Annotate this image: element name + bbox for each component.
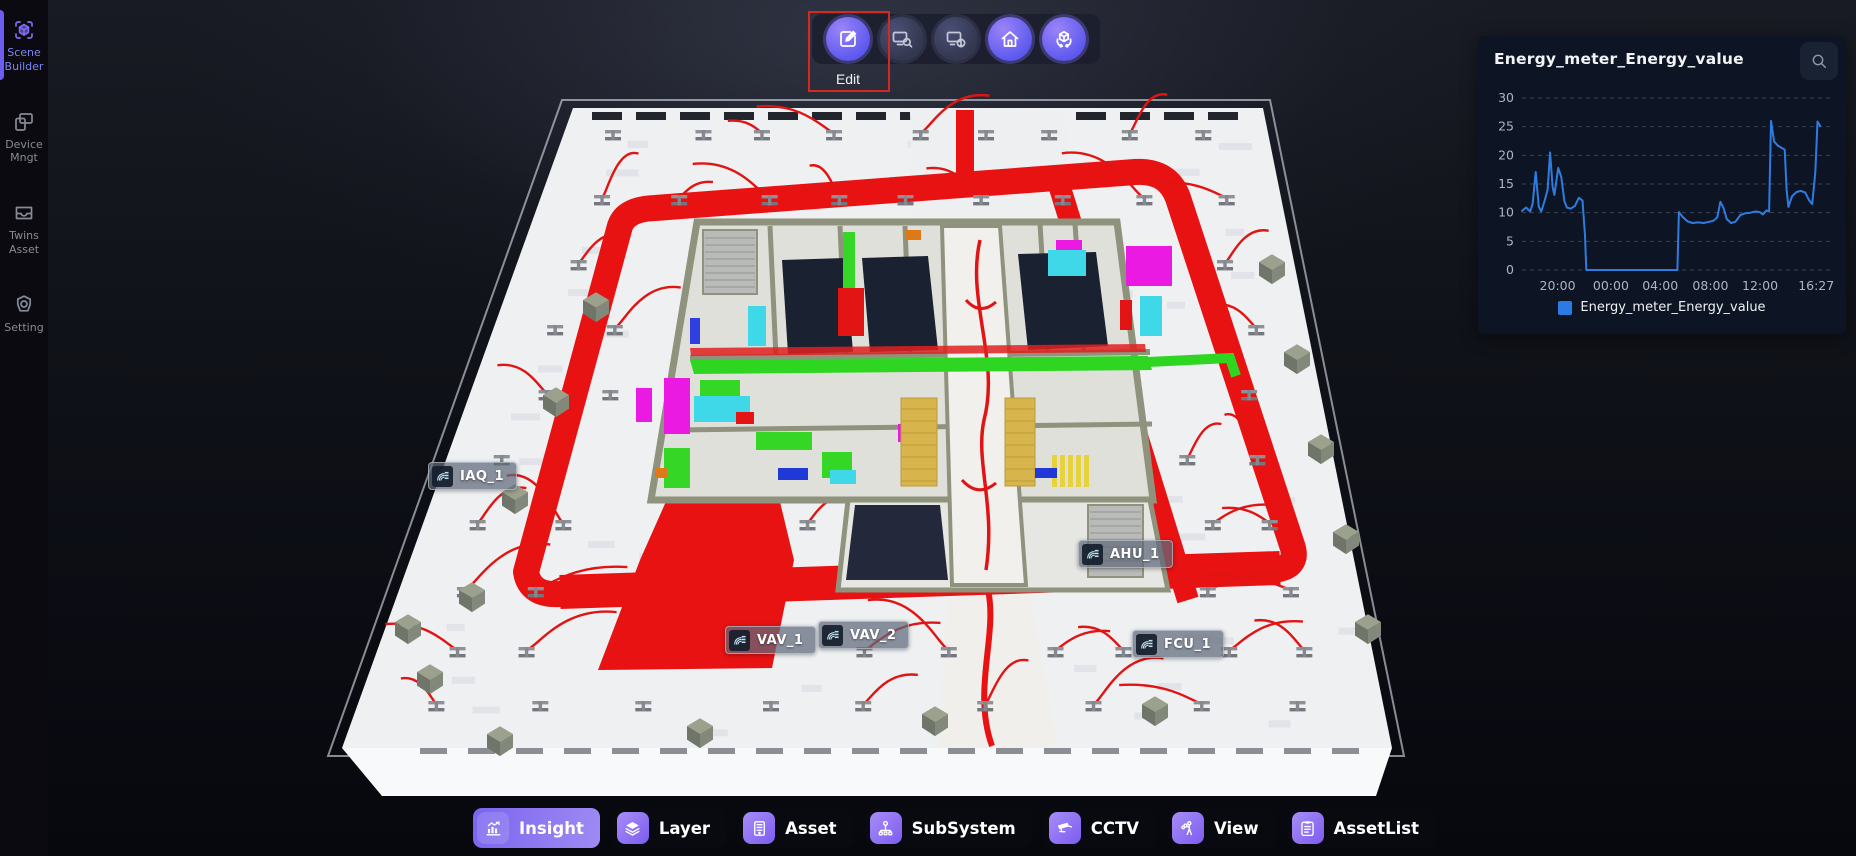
home-icon (998, 27, 1022, 51)
svg-text:12:00: 12:00 (1742, 278, 1778, 293)
device-info-icon (944, 27, 968, 51)
chart-title: Energy_meter_Energy_value (1494, 50, 1744, 68)
svg-text:16:27: 16:27 (1798, 278, 1834, 293)
device-label-VAV_1[interactable]: VAV_1 (725, 626, 816, 654)
svg-text:08:00: 08:00 (1692, 278, 1728, 293)
signal-icon (1082, 544, 1103, 565)
insight-icon (477, 812, 509, 844)
scene-builder-icon (12, 18, 36, 42)
bottom-tool-subsystem[interactable]: SubSystem (866, 808, 1032, 848)
cctv-icon (1049, 812, 1081, 844)
bottom-tool-view[interactable]: View (1168, 808, 1275, 848)
bottom-tool-label: Insight (519, 819, 584, 838)
bottom-tool-label: CCTV (1091, 819, 1139, 838)
asset-icon (743, 812, 775, 844)
assetlist-icon (1292, 812, 1324, 844)
app-root: IAQ_1AHU_1VAV_1VAV_2FCU_1 Scene BuilderD… (0, 0, 1856, 856)
svg-text:15: 15 (1498, 176, 1514, 191)
bottom-tool-assetlist[interactable]: AssetList (1288, 808, 1435, 848)
svg-text:0: 0 (1506, 262, 1514, 277)
setting-icon (12, 293, 36, 317)
bottom-tool-insight[interactable]: Insight (473, 808, 600, 848)
svg-text:00:00: 00:00 (1593, 278, 1629, 293)
device-search-button[interactable] (880, 17, 924, 61)
device-name: IAQ_1 (460, 469, 504, 484)
device-name: FCU_1 (1164, 637, 1211, 652)
edit-button[interactable]: Edit (826, 17, 870, 61)
signal-icon (729, 630, 750, 651)
sidebar-item-label: Setting (1, 321, 47, 335)
device-label-IAQ_1[interactable]: IAQ_1 (428, 462, 517, 490)
bottom-tool-label: AssetList (1334, 819, 1419, 838)
sidebar-item-scene-builder[interactable]: Scene Builder (0, 6, 48, 84)
chart-panel: Energy_meter_Energy_value 05101520253020… (1478, 36, 1846, 334)
bottom-tool-asset[interactable]: Asset (739, 808, 853, 848)
bottom-tool-layer[interactable]: Layer (613, 808, 726, 848)
sidebar-item-device-mngt[interactable]: Device Mngt (0, 98, 48, 176)
svg-text:30: 30 (1498, 90, 1514, 105)
floor-plate-and-piping (328, 94, 1404, 796)
edit-icon (836, 27, 860, 51)
device-label-VAV_2[interactable]: VAV_2 (818, 621, 909, 649)
sidebar-item-twins-asset[interactable]: Twins Asset (0, 189, 48, 267)
sidebar-item-label: Twins Asset (1, 229, 47, 257)
signal-icon (822, 625, 843, 646)
sidebar-item-setting[interactable]: Setting (0, 281, 48, 345)
signal-icon (432, 466, 453, 487)
model-rotate-icon (1052, 27, 1076, 51)
subsystem-icon (870, 812, 902, 844)
chart-legend[interactable]: Energy_meter_Energy_value (1478, 300, 1846, 315)
layer-icon (617, 812, 649, 844)
model-rotate-button[interactable] (1042, 17, 1086, 61)
home-button[interactable] (988, 17, 1032, 61)
energy-line-chart: 05101520253020:0000:0004:0008:0012:0016:… (1478, 80, 1846, 302)
svg-text:25: 25 (1498, 119, 1514, 134)
device-name: AHU_1 (1110, 547, 1160, 562)
top-toolbar: Edit (812, 14, 1100, 64)
device-info-button[interactable] (934, 17, 978, 61)
device-label-AHU_1[interactable]: AHU_1 (1078, 540, 1173, 568)
bottom-toolbar: InsightLayerAssetSubSystemCCTVViewAssetL… (0, 808, 1856, 848)
view-icon (1172, 812, 1204, 844)
legend-label: Energy_meter_Energy_value (1580, 300, 1765, 315)
twins-asset-icon (12, 201, 36, 225)
svg-text:04:00: 04:00 (1642, 278, 1678, 293)
svg-text:20:00: 20:00 (1540, 278, 1576, 293)
bottom-tool-cctv[interactable]: CCTV (1045, 808, 1155, 848)
magnifier-icon[interactable] (1800, 42, 1838, 80)
device-name: VAV_2 (850, 628, 896, 643)
svg-text:20: 20 (1498, 147, 1514, 162)
device-mngt-icon (12, 110, 36, 134)
signal-icon (1136, 634, 1157, 655)
bottom-tool-label: Layer (659, 819, 710, 838)
device-label-FCU_1[interactable]: FCU_1 (1132, 630, 1224, 658)
bottom-tool-label: View (1214, 819, 1259, 838)
sidebar-item-label: Scene Builder (1, 46, 47, 74)
device-search-icon (890, 27, 914, 51)
sidebar: Scene BuilderDevice MngtTwins AssetSetti… (0, 0, 48, 856)
bottom-tool-label: SubSystem (912, 819, 1016, 838)
toolbar-button-label: Edit (836, 71, 860, 87)
svg-text:5: 5 (1506, 233, 1514, 248)
svg-text:10: 10 (1498, 205, 1514, 220)
bottom-tool-label: Asset (785, 819, 837, 838)
sidebar-item-label: Device Mngt (1, 138, 47, 166)
device-name: VAV_1 (757, 633, 803, 648)
legend-swatch-icon (1558, 301, 1572, 315)
